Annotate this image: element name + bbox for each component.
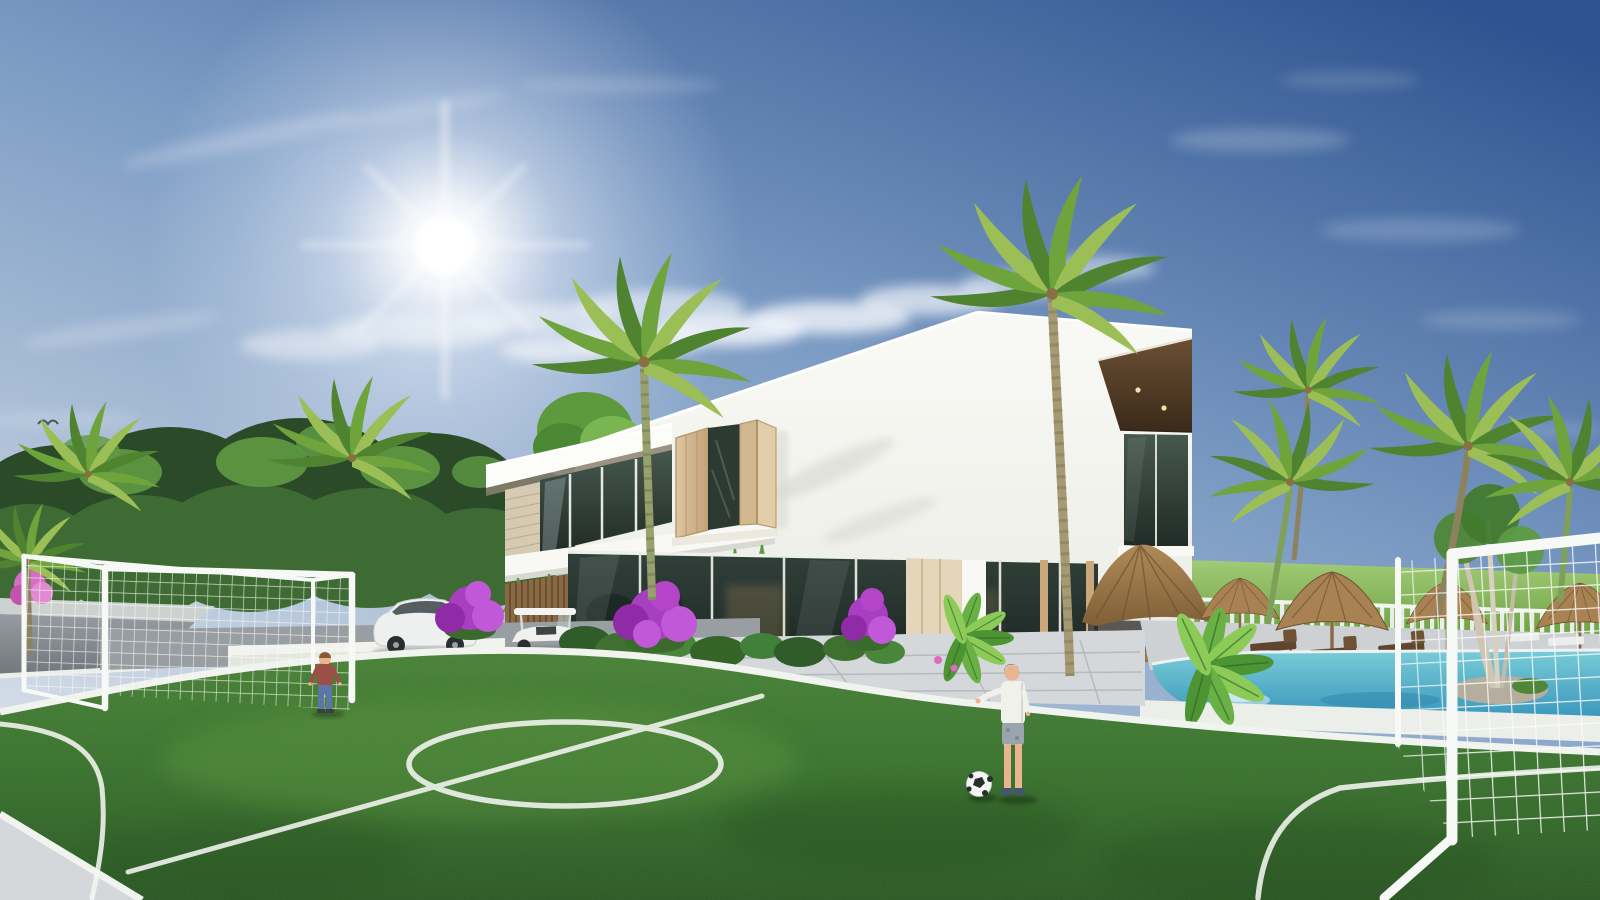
boy-center-head [1005,666,1020,681]
boy-center-shoe [1014,788,1025,795]
balcony [1118,434,1194,556]
boy-center-leg [1004,744,1011,788]
cart-roof [514,608,576,615]
goal-left [24,556,352,710]
pink-blossom [951,665,958,672]
rendering-canvas: 3D architectural rendering of a modern t… [0,0,1600,900]
shutter-right-panel-a [740,420,757,525]
villa-rendering: 3D architectural rendering of a modern t… [0,0,1600,900]
boy-center-leg [1015,744,1022,788]
sun-core [415,215,475,275]
shutter-left-panel [676,428,708,538]
shutter-window-glass [708,424,740,530]
shutter-right-panel-b [757,420,776,528]
boy-left-jeans [318,685,332,694]
pink-blossom [934,656,942,664]
boy-center-shorts [1002,723,1024,745]
boy-left-shoe [326,709,334,713]
boy-left-shoe [317,709,325,713]
soffit-downlight [1135,387,1140,392]
cart-seat [536,626,556,635]
soffit-downlight [1161,405,1166,410]
boy-left-shirt [317,664,333,686]
boy-center-shoe [1001,788,1012,795]
goal-right-net [1452,540,1600,838]
